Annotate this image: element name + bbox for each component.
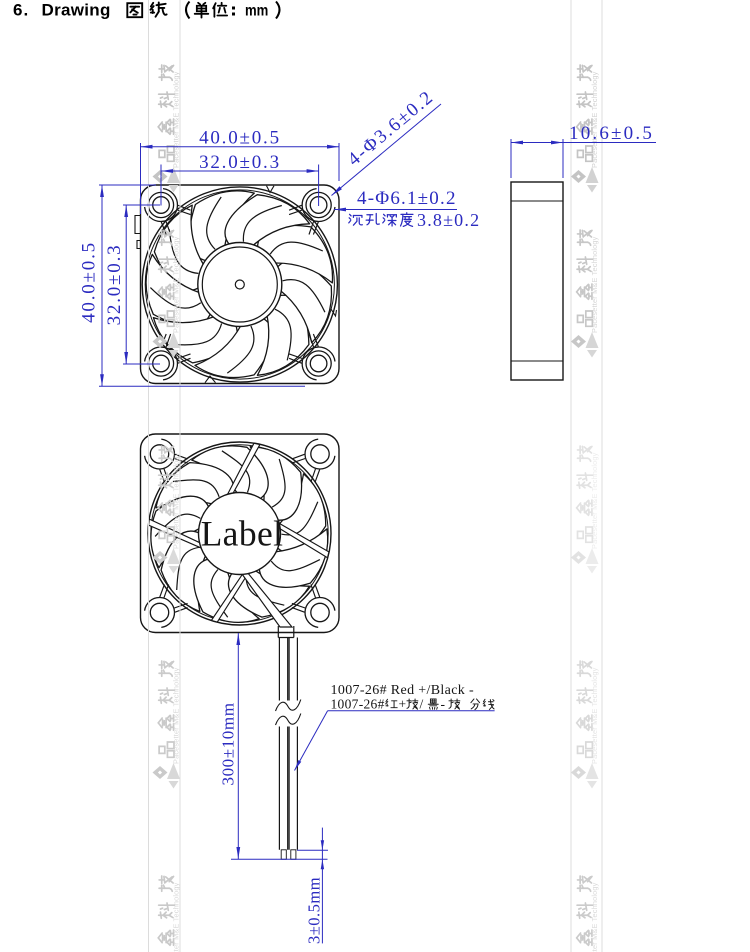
svg-text:Drawing: Drawing: [42, 1, 111, 20]
svg-text:Pacesetter M&E Technology: Pacesetter M&E Technology: [590, 452, 599, 549]
svg-text:4-Φ3.6±0.2: 4-Φ3.6±0.2: [344, 86, 438, 170]
svg-text:Pacesetter M&E Technology: Pacesetter M&E Technology: [590, 667, 599, 764]
svg-text:Pacesetter M&E Technology: Pacesetter M&E Technology: [172, 882, 181, 952]
svg-text:Pacesetter M&E Technology: Pacesetter M&E Technology: [590, 236, 599, 333]
svg-text:Pacesetter M&E Technology: Pacesetter M&E Technology: [172, 71, 181, 168]
svg-text:40.0±0.5: 40.0±0.5: [199, 127, 281, 148]
svg-text:-: -: [441, 697, 446, 712]
svg-text:mm: mm: [245, 2, 268, 19]
svg-text:3.8±0.2: 3.8±0.2: [417, 210, 480, 230]
svg-text:300±10mm: 300±10mm: [219, 702, 238, 785]
svg-text:Label: Label: [201, 514, 284, 554]
svg-text:1007-26#: 1007-26#: [331, 697, 385, 712]
svg-text:3±0.5mm: 3±0.5mm: [305, 877, 324, 944]
svg-text:Pacesetter M&E Technology: Pacesetter M&E Technology: [590, 71, 599, 168]
svg-text:32.0±0.3: 32.0±0.3: [104, 244, 125, 326]
svg-text:4-Φ6.1±0.2: 4-Φ6.1±0.2: [357, 188, 457, 209]
svg-text:Pacesetter M&E Technology: Pacesetter M&E Technology: [172, 452, 181, 549]
svg-text:Pacesetter M&E Technology: Pacesetter M&E Technology: [590, 882, 599, 952]
svg-text:Pacesetter M&E Technology: Pacesetter M&E Technology: [172, 667, 181, 764]
svg-text:Pacesetter M&E Technology: Pacesetter M&E Technology: [172, 236, 181, 333]
svg-text:32.0±0.3: 32.0±0.3: [199, 152, 281, 173]
svg-text:10.6±0.5: 10.6±0.5: [569, 123, 654, 144]
svg-text:+: +: [399, 697, 407, 712]
svg-text:40.0±0.5: 40.0±0.5: [79, 241, 100, 323]
svg-text:6.: 6.: [13, 1, 29, 20]
svg-text:/: /: [420, 697, 424, 712]
